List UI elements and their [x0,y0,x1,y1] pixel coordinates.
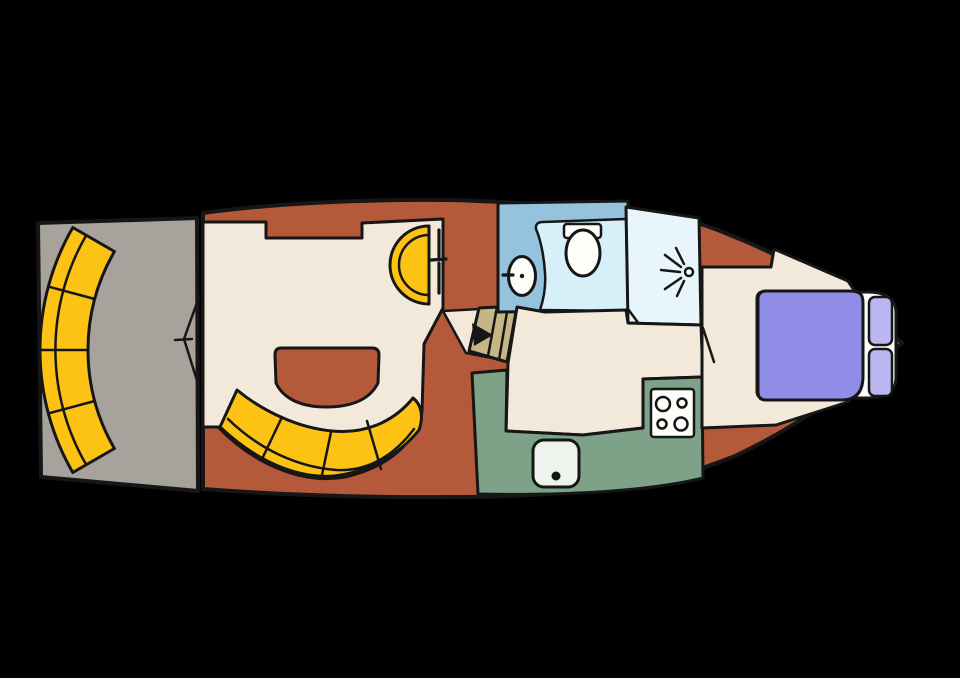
floorplan-canvas [0,0,960,678]
bed-pillow-bottom [869,349,892,396]
burner-small-bottom-left [658,420,667,429]
shower-head-icon [685,268,693,276]
salon-table [275,348,379,407]
bed-pillow-top [869,297,892,345]
stove-top [651,389,694,437]
burner-large-top-left [656,397,670,411]
shower-room [626,207,701,325]
bed-duvet [758,291,863,400]
sink-drain-icon [520,274,524,278]
burner-small-top-right [678,399,687,408]
toilet-bowl [566,230,600,276]
burner-large-bottom-right [675,418,688,431]
boat-floorplan [0,0,960,678]
galley-sink-drain-icon [552,472,561,481]
